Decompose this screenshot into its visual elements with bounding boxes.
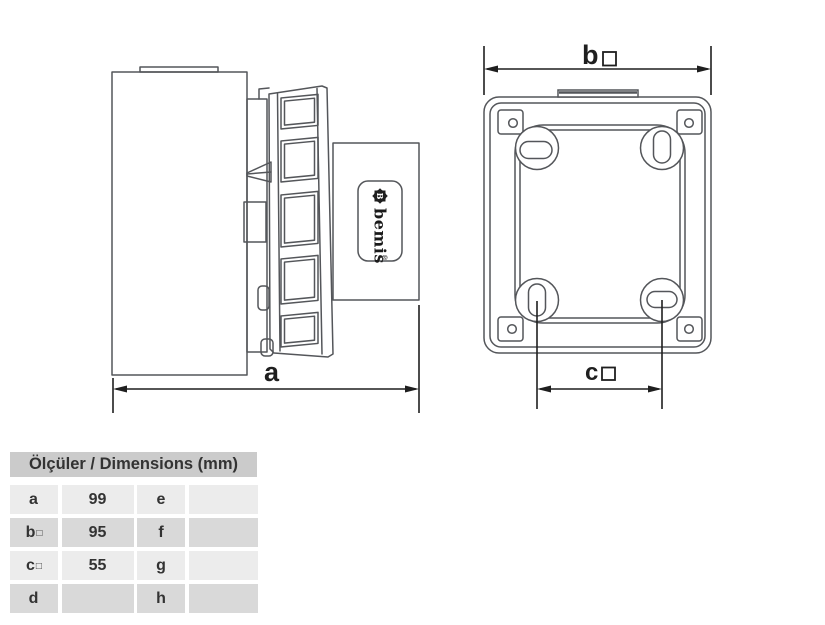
cell-g-value — [189, 551, 258, 580]
cell-f-label: f — [137, 518, 185, 547]
mounting-step — [247, 99, 267, 352]
screw-hole-br — [685, 325, 694, 334]
screw-hole-tr — [685, 119, 694, 128]
logo-monogram: B — [375, 193, 385, 200]
dimensions-table: Ölçüler / Dimensions (mm) a 99 e b□ 95 f… — [10, 452, 257, 613]
square-symbol — [603, 52, 616, 66]
cell-a-label: a — [10, 485, 58, 514]
cell-a-value: 99 — [62, 485, 134, 514]
technical-drawing: B bemis ® — [0, 0, 825, 450]
screw-hole-bl — [508, 325, 517, 334]
corner-boss-tr — [677, 110, 702, 134]
table-grid: a 99 e b□ 95 f c□ 55 g d h — [10, 485, 257, 613]
mounting-slot-tl — [520, 142, 552, 159]
corner-boss-br — [677, 317, 702, 341]
square-symbol — [602, 368, 615, 381]
table-title: Ölçüler / Dimensions (mm) — [10, 452, 257, 477]
cell-e-label: e — [137, 485, 185, 514]
side-view: B bemis ® — [112, 67, 419, 375]
corner-boss-tl — [498, 110, 523, 134]
cell-e-value — [189, 485, 258, 514]
enclosure-top-tab — [140, 67, 218, 72]
dimension-a: a — [113, 305, 419, 413]
cell-h-label: h — [137, 584, 185, 613]
dimension-a-label: a — [264, 357, 280, 387]
cell-d-value — [62, 584, 134, 613]
screw-hole-tl — [509, 119, 518, 128]
corner-boss-bl — [498, 317, 523, 341]
flange-windows — [281, 94, 318, 347]
rear-view — [484, 90, 711, 353]
bemis-gear-icon: B — [372, 188, 388, 204]
dimension-c-label: c — [585, 359, 598, 386]
dimension-b: b — [484, 40, 711, 95]
cell-d-label: d — [10, 584, 58, 613]
cell-h-value — [189, 584, 258, 613]
cell-b-value: 95 — [62, 518, 134, 547]
dimension-b-label: b — [582, 40, 599, 70]
registered-mark: ® — [380, 254, 388, 261]
cell-c-label: c□ — [10, 551, 58, 580]
cell-c-value: 55 — [62, 551, 134, 580]
page: B bemis ® — [0, 0, 825, 625]
cell-b-label: b□ — [10, 518, 58, 547]
enclosure-body — [112, 72, 247, 375]
dimension-c: c — [537, 300, 662, 409]
cell-f-value — [189, 518, 258, 547]
mounting-slot-tr — [654, 131, 671, 163]
cell-g-label: g — [137, 551, 185, 580]
